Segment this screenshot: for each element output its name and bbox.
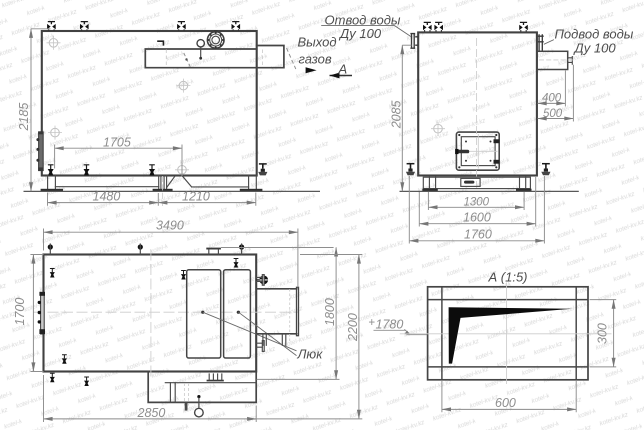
svg-text:1210: 1210: [182, 190, 210, 204]
svg-text:400: 400: [542, 93, 562, 105]
svg-text:1780: 1780: [376, 318, 404, 332]
svg-text:А: А: [338, 62, 348, 77]
svg-text:500: 500: [543, 108, 563, 120]
svg-text:1480: 1480: [93, 190, 121, 204]
svg-text:Ду 100: Ду 100: [573, 41, 617, 56]
svg-text:1800: 1800: [323, 298, 337, 326]
svg-text:Подвод воды: Подвод воды: [555, 27, 634, 42]
svg-text:3490: 3490: [156, 218, 184, 232]
svg-text:1300: 1300: [464, 197, 490, 209]
svg-text:2085: 2085: [389, 100, 403, 129]
svg-text:газов: газов: [299, 52, 332, 67]
svg-text:2850: 2850: [137, 406, 166, 420]
svg-text:1760: 1760: [464, 228, 492, 242]
svg-text:Ду 100: Ду 100: [338, 26, 382, 41]
svg-text:Люк: Люк: [297, 347, 324, 362]
svg-text:2185: 2185: [17, 103, 31, 132]
svg-text:Выход: Выход: [298, 35, 337, 50]
svg-text:300: 300: [596, 323, 610, 344]
svg-text:+: +: [368, 317, 375, 329]
svg-text:1700: 1700: [13, 298, 27, 326]
svg-text:А (1:5): А (1:5): [488, 270, 528, 285]
svg-text:2200: 2200: [346, 313, 360, 342]
svg-text:1705: 1705: [103, 135, 131, 149]
svg-text:600: 600: [495, 396, 516, 410]
svg-text:1600: 1600: [463, 211, 491, 225]
